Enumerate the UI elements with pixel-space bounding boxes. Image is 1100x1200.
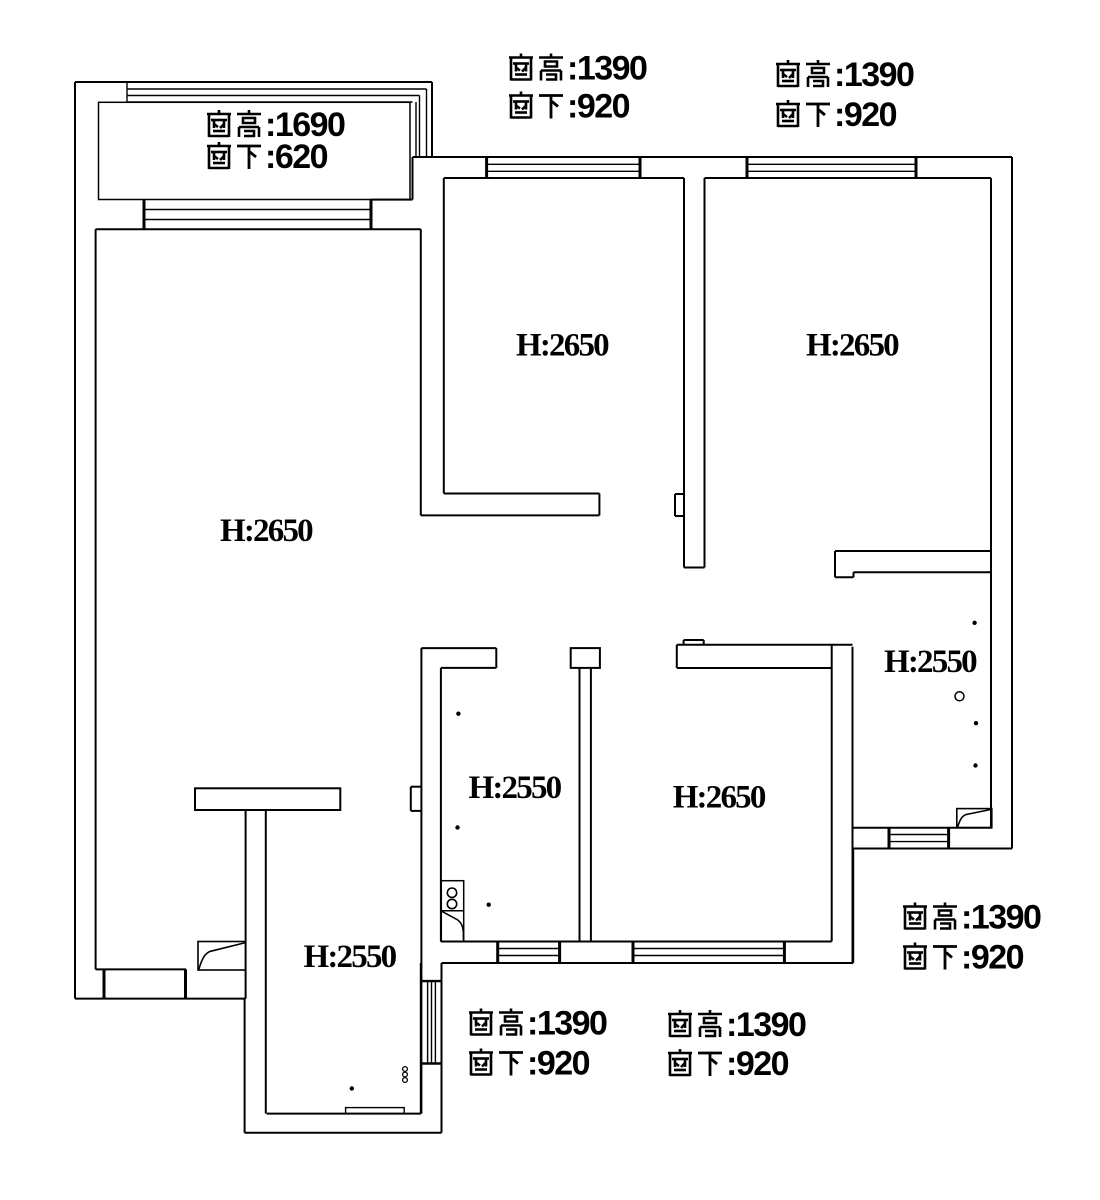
svg-text::620: :620 <box>265 138 328 176</box>
svg-text:H:2550: H:2550 <box>304 939 397 975</box>
svg-text:H:2650: H:2650 <box>806 328 899 364</box>
svg-text::1390: :1390 <box>726 1006 806 1044</box>
svg-text:H:2550: H:2550 <box>884 644 977 680</box>
svg-text::920: :920 <box>961 939 1024 977</box>
svg-text:H:2650: H:2650 <box>516 328 609 364</box>
svg-text::1390: :1390 <box>834 56 914 94</box>
svg-text:H:2550: H:2550 <box>469 770 562 806</box>
svg-text::920: :920 <box>527 1045 590 1083</box>
svg-text::1390: :1390 <box>961 899 1041 937</box>
svg-text:H:2650: H:2650 <box>220 513 313 549</box>
svg-text::920: :920 <box>726 1045 789 1083</box>
svg-text::920: :920 <box>567 88 630 126</box>
svg-text:H:2650: H:2650 <box>673 780 766 816</box>
svg-text::1390: :1390 <box>567 50 647 88</box>
svg-text::1390: :1390 <box>527 1005 607 1043</box>
svg-text::920: :920 <box>834 96 897 134</box>
